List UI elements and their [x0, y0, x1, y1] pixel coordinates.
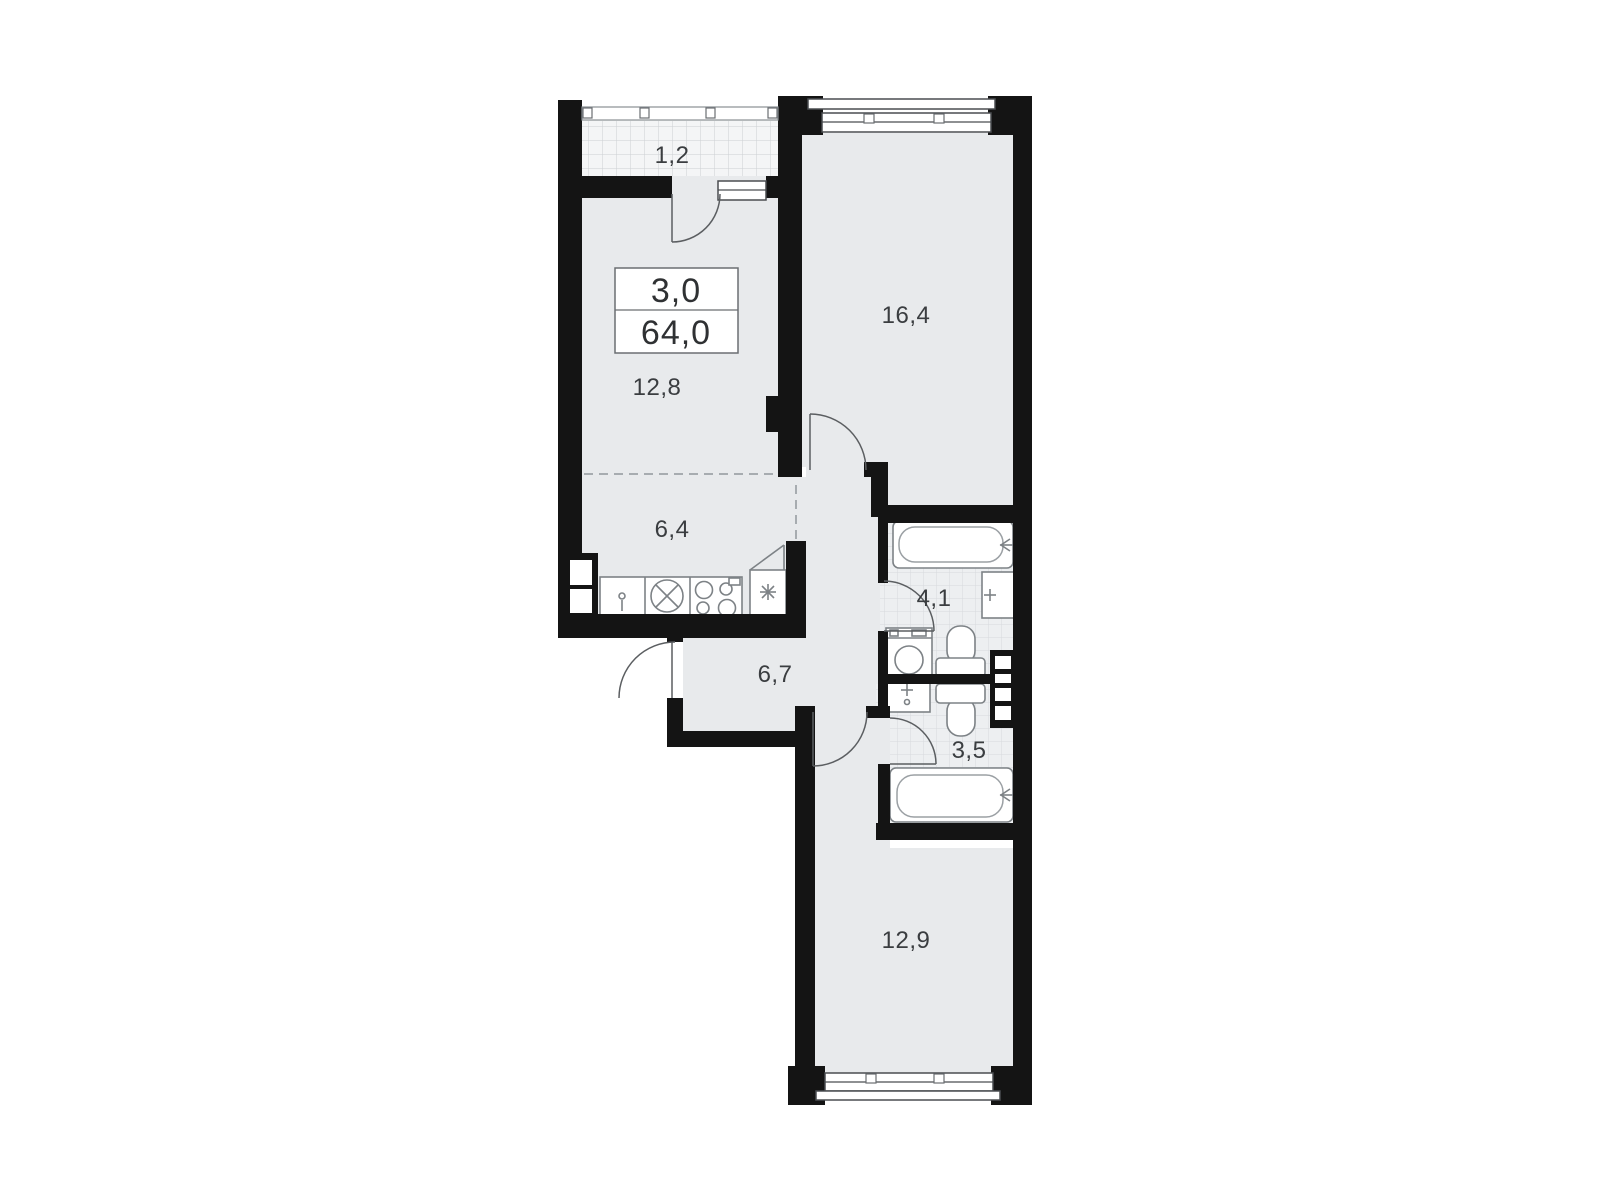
vent-shaft-icon: [570, 589, 592, 613]
wall-balcony-left: [558, 100, 582, 198]
bedroom-upper-door-threshold: [806, 462, 868, 477]
bedroom-upper-floor: [800, 133, 1015, 467]
wall-right-outer: [1013, 96, 1032, 1105]
label-bedroom-upper-area: 16,4: [882, 302, 931, 329]
label-living-room-area: 12,8: [633, 374, 682, 401]
bathtub-icon: [893, 521, 1013, 568]
wall-bedroom-lower-left: [795, 706, 815, 1075]
washing-machine-icon: [886, 628, 932, 678]
window-bedroom-lower: [816, 1073, 1000, 1100]
wall-between-bathrooms: [880, 674, 995, 684]
wall-balcony-bottom-right: [766, 176, 778, 198]
wall-pilaster: [766, 396, 802, 432]
washbasin-icon-toilet-room: [884, 680, 930, 712]
washbasin-icon-bathroom: [982, 572, 1014, 618]
door-entrance: [619, 642, 675, 698]
vent-shaft-icon: [995, 674, 1011, 683]
balcony-railing: [582, 107, 778, 120]
living-kitchen-floor: [580, 176, 788, 616]
wall-toilet-room-bottom: [876, 823, 1015, 840]
info-box: 3,0 64,0: [615, 268, 738, 353]
label-balcony-area: 1,2: [655, 142, 690, 169]
wall-hall-bottom: [667, 731, 815, 747]
bathtub-icon-toilet-room: [890, 768, 1013, 822]
wall-entry-top-stub: [667, 632, 683, 642]
vent-shaft-icon: [995, 656, 1011, 669]
label-bathroom-area: 4,1: [917, 585, 952, 612]
label-kitchen-area: 6,4: [655, 516, 690, 543]
info-total-area: 64,0: [641, 314, 711, 352]
label-toilet-room-area: 3,5: [952, 737, 987, 764]
window-living-room: [718, 181, 766, 200]
window-bedroom-upper: [808, 99, 995, 132]
wall-hall-right-upper: [878, 462, 888, 583]
label-hallway-area: 6,7: [758, 661, 793, 688]
vent-shaft-icon: [570, 560, 592, 585]
wall-kitchen-right: [786, 541, 806, 618]
label-bedroom-lower-area: 12,9: [882, 927, 931, 954]
wall-hall-right-lower: [878, 631, 888, 712]
hallway-passage-floor: [806, 477, 880, 615]
kitchen-counter: [600, 577, 742, 617]
floor-plan-drawing: 1,2 12,8 6,4 16,4 6,7 4,1 3,5 12,9 3,0 6…: [0, 0, 1600, 1200]
vent-shaft-icon: [995, 706, 1011, 720]
wall-balcony-bottom-left: [582, 176, 672, 198]
wall-bathroom-top: [883, 505, 1015, 523]
vent-shaft-block-right: [990, 650, 1016, 728]
info-rooms-count: 3,0: [651, 272, 701, 310]
bedroom-lower-floor: [813, 848, 1015, 1077]
vent-shaft-icon: [995, 688, 1011, 701]
floor-plan-page: 1,2 12,8 6,4 16,4 6,7 4,1 3,5 12,9 3,0 6…: [0, 0, 1600, 1200]
wall-toilet-room-left: [878, 764, 890, 825]
